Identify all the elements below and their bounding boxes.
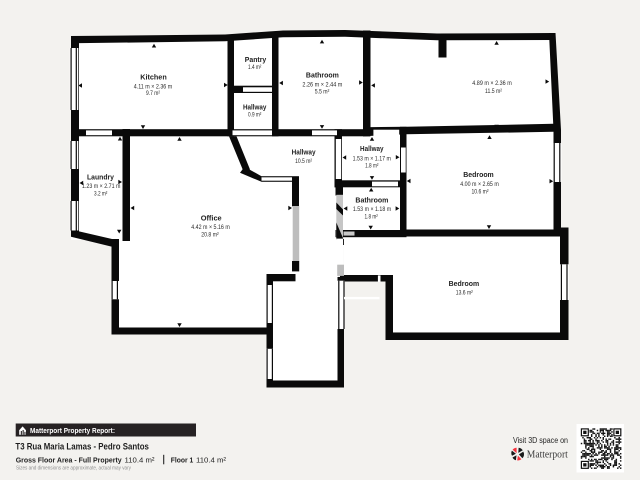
- svg-text:9.7 m²: 9.7 m²: [146, 90, 160, 97]
- svg-text:1.4 m²: 1.4 m²: [248, 64, 261, 71]
- svg-text:4.00 m × 2.65 m: 4.00 m × 2.65 m: [460, 181, 499, 188]
- svg-text:Bathroom: Bathroom: [306, 71, 339, 80]
- svg-text:1.8 m²: 1.8 m²: [365, 213, 378, 220]
- svg-text:Matterport: Matterport: [527, 448, 568, 460]
- svg-text:Bedroom: Bedroom: [463, 170, 494, 179]
- svg-text:Kitchen: Kitchen: [140, 73, 167, 82]
- svg-text:10.5 m²: 10.5 m²: [295, 158, 312, 165]
- svg-text:11.5 m²: 11.5 m²: [485, 88, 502, 95]
- svg-text:Gross Floor Area - Full Proper: Gross Floor Area - Full Property: [16, 455, 123, 464]
- svg-text:1.23 m × 2.71 m: 1.23 m × 2.71 m: [82, 183, 121, 190]
- svg-text:T3 Rua Maria Lamas - Pedro San: T3 Rua Maria Lamas - Pedro Santos: [15, 441, 149, 452]
- svg-text:Visit 3D space on: Visit 3D space on: [513, 436, 568, 445]
- svg-text:Hallway: Hallway: [243, 103, 267, 112]
- svg-text:Sizes and dimensions are appro: Sizes and dimensions are approximate, ac…: [16, 466, 131, 472]
- svg-text:Bedroom: Bedroom: [449, 279, 480, 288]
- svg-text:Office: Office: [201, 213, 222, 222]
- svg-text:4.89 m × 2.36 m: 4.89 m × 2.36 m: [472, 80, 512, 87]
- svg-text:10.6 m²: 10.6 m²: [472, 188, 489, 195]
- svg-text:Hallway: Hallway: [360, 144, 384, 153]
- svg-text:Pantry: Pantry: [245, 55, 267, 64]
- svg-text:1.8 m²: 1.8 m²: [365, 163, 378, 170]
- svg-text:5.5 m²: 5.5 m²: [315, 88, 330, 95]
- svg-text:3.2 m²: 3.2 m²: [94, 190, 107, 197]
- svg-text:4.42 m × 5.16 m: 4.42 m × 5.16 m: [191, 224, 230, 231]
- svg-text:Bathroom: Bathroom: [355, 195, 388, 204]
- svg-text:Matterport Property Report:: Matterport Property Report:: [30, 428, 115, 435]
- svg-text:Hallway: Hallway: [292, 148, 317, 157]
- svg-text:Laundry: Laundry: [87, 172, 115, 181]
- svg-text:Floor 1: Floor 1: [171, 455, 194, 464]
- svg-text:1.53 m × 1.17 m: 1.53 m × 1.17 m: [353, 155, 391, 162]
- svg-text:20.8 m²: 20.8 m²: [201, 231, 219, 238]
- svg-text:110.4 m²: 110.4 m²: [196, 455, 226, 464]
- svg-text:13.6 m²: 13.6 m²: [456, 289, 473, 296]
- svg-text:1.53 m × 1.18 m: 1.53 m × 1.18 m: [353, 206, 391, 213]
- svg-text:110.4 m²: 110.4 m²: [125, 455, 155, 464]
- svg-text:0.9 m²: 0.9 m²: [248, 112, 261, 119]
